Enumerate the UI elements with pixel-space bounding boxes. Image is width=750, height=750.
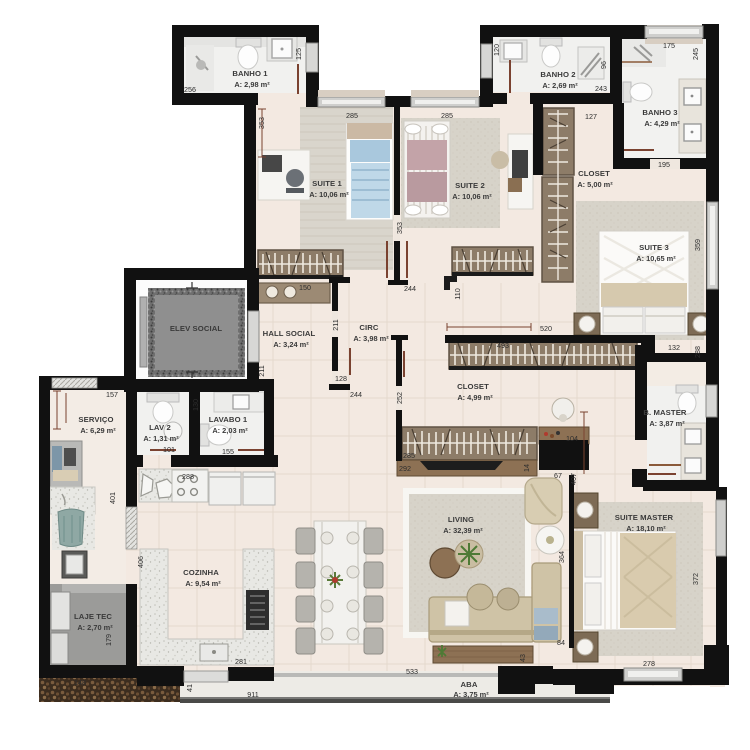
svg-text:285: 285 [346,111,358,120]
svg-text:SUITE 1: SUITE 1 [312,179,342,188]
svg-text:LAV 2: LAV 2 [149,423,171,432]
svg-text:353: 353 [395,222,404,234]
svg-text:195: 195 [658,160,670,169]
svg-text:SUITE MASTER: SUITE MASTER [615,513,674,522]
svg-text:125: 125 [294,48,303,60]
svg-text:A: 6,29 m²: A: 6,29 m² [80,426,116,435]
svg-text:285: 285 [441,111,453,120]
svg-text:372: 372 [691,573,700,585]
svg-text:HALL SOCIAL: HALL SOCIAL [263,329,316,338]
svg-text:A: 2,03 m²: A: 2,03 m² [212,426,248,435]
svg-text:43: 43 [518,654,527,662]
svg-text:SERVIÇO: SERVIÇO [78,415,113,424]
svg-text:288: 288 [693,346,702,358]
svg-text:A: 5,00 m²: A: 5,00 m² [577,180,613,189]
svg-text:67: 67 [554,471,562,480]
svg-text:179: 179 [104,634,113,646]
svg-text:533: 533 [406,667,418,676]
svg-text:401: 401 [108,492,117,504]
svg-text:120: 120 [492,44,501,56]
svg-text:A: 3,75 m²: A: 3,75 m² [453,690,489,699]
svg-text:14: 14 [522,464,531,472]
svg-text:A: 10,06 m²: A: 10,06 m² [452,192,492,201]
svg-text:LAVABO 1: LAVABO 1 [209,415,248,424]
svg-text:244: 244 [350,390,362,399]
svg-text:148: 148 [74,678,86,687]
svg-text:252: 252 [395,392,404,404]
svg-text:A: 2,98 m²: A: 2,98 m² [234,80,270,89]
svg-text:A: 32,39 m²: A: 32,39 m² [443,526,483,535]
svg-text:244: 244 [404,284,416,293]
svg-text:132: 132 [668,343,680,352]
svg-text:41: 41 [185,684,194,692]
svg-text:211: 211 [331,319,340,330]
svg-text:128: 128 [335,374,347,383]
svg-text:A: 1,31 m²: A: 1,31 m² [143,434,179,443]
svg-text:A: 4,99 m²: A: 4,99 m² [457,393,493,402]
svg-text:211: 211 [257,365,266,376]
svg-text:364: 364 [557,551,566,563]
svg-text:A: 9,54 m²: A: 9,54 m² [185,579,221,588]
svg-text:SUITE 2: SUITE 2 [455,181,485,190]
svg-text:CIRC: CIRC [359,323,379,332]
svg-text:BANHO 3: BANHO 3 [642,108,677,117]
svg-text:110: 110 [453,288,462,299]
svg-text:155: 155 [222,447,234,456]
svg-text:520: 520 [540,324,552,333]
svg-text:493: 493 [497,341,509,350]
svg-text:A: 10,65 m²: A: 10,65 m² [636,254,676,263]
svg-text:281: 281 [235,657,247,666]
svg-text:A: 3,98 m²: A: 3,98 m² [353,334,389,343]
svg-text:101: 101 [163,445,175,454]
svg-text:353: 353 [257,117,266,129]
svg-text:LAJE TEC: LAJE TEC [74,612,112,621]
svg-text:B. MASTER: B. MASTER [643,408,687,417]
svg-text:243: 243 [595,84,607,93]
svg-text:84: 84 [557,638,565,647]
svg-text:292: 292 [399,464,411,473]
svg-text:A: 3,24 m²: A: 3,24 m² [273,340,309,349]
svg-text:407: 407 [569,473,578,485]
svg-text:150: 150 [299,283,311,292]
svg-text:BANHO 1: BANHO 1 [232,69,268,78]
svg-text:CLOSET: CLOSET [578,169,610,178]
svg-text:127: 127 [585,112,597,121]
svg-text:278: 278 [643,659,655,668]
svg-text:A: 2,69 m²: A: 2,69 m² [542,81,578,90]
svg-text:245: 245 [691,48,700,60]
svg-text:157: 157 [106,390,118,399]
svg-text:A: 10,06 m²: A: 10,06 m² [309,190,349,199]
svg-text:175: 175 [663,41,675,50]
svg-text:A: 3,87 m²: A: 3,87 m² [649,419,685,428]
svg-text:256: 256 [184,85,196,94]
svg-text:406: 406 [136,556,145,568]
svg-text:359: 359 [693,239,702,251]
svg-text:285: 285 [403,451,415,460]
svg-text:SUITE 3: SUITE 3 [639,243,669,252]
svg-text:104: 104 [566,434,578,443]
svg-text:ABA: ABA [461,680,478,689]
svg-text:COZINHA: COZINHA [183,568,219,577]
svg-text:A: 4,29 m²: A: 4,29 m² [644,119,680,128]
svg-text:A: 2,70 m²: A: 2,70 m² [77,623,113,632]
svg-text:130: 130 [191,399,200,411]
svg-text:96: 96 [599,61,608,69]
svg-text:LIVING: LIVING [448,515,474,524]
svg-text:A: 18,10 m²: A: 18,10 m² [626,524,666,533]
svg-text:BANHO 2: BANHO 2 [540,70,575,79]
svg-text:911: 911 [247,690,258,699]
svg-text:ELEV SOCIAL: ELEV SOCIAL [170,324,223,333]
svg-text:CLOSET: CLOSET [457,382,489,391]
svg-text:288: 288 [182,472,194,481]
